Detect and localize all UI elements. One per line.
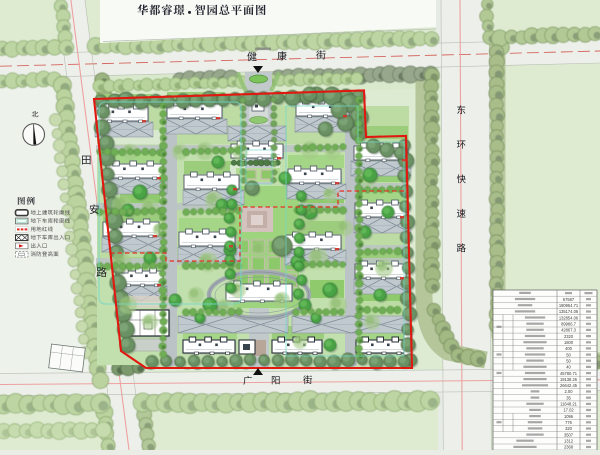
svg-text:19138.26: 19138.26 [560, 377, 578, 382]
svg-text:1312: 1312 [564, 439, 574, 444]
svg-text:320: 320 [565, 426, 573, 431]
svg-text:26642.45: 26642.45 [560, 383, 578, 388]
svg-text:42867.3: 42867.3 [561, 328, 577, 333]
svg-text:50: 50 [566, 352, 571, 357]
svg-text:35: 35 [566, 395, 571, 400]
svg-text:67587: 67587 [563, 297, 575, 302]
svg-text:135174.06: 135174.06 [559, 309, 579, 314]
svg-text:1800: 1800 [564, 340, 574, 345]
svg-text:776: 776 [565, 420, 573, 425]
svg-text:40: 40 [566, 365, 571, 370]
svg-text:1096: 1096 [564, 414, 574, 419]
svg-text:2320: 2320 [564, 334, 574, 339]
svg-text:2368: 2368 [564, 445, 574, 450]
svg-text:2.00: 2.00 [565, 389, 574, 394]
svg-text:45780.71: 45780.71 [560, 371, 578, 376]
svg-text:400: 400 [565, 346, 573, 351]
svg-text:89986.7: 89986.7 [561, 322, 577, 327]
svg-text:17.02: 17.02 [563, 408, 574, 413]
svg-text:132854.06: 132854.06 [559, 315, 579, 320]
svg-text:3507: 3507 [564, 432, 574, 437]
svg-text:11648.21: 11648.21 [560, 402, 577, 407]
svg-text:180954.71: 180954.71 [559, 303, 579, 308]
svg-text:50: 50 [566, 358, 571, 363]
